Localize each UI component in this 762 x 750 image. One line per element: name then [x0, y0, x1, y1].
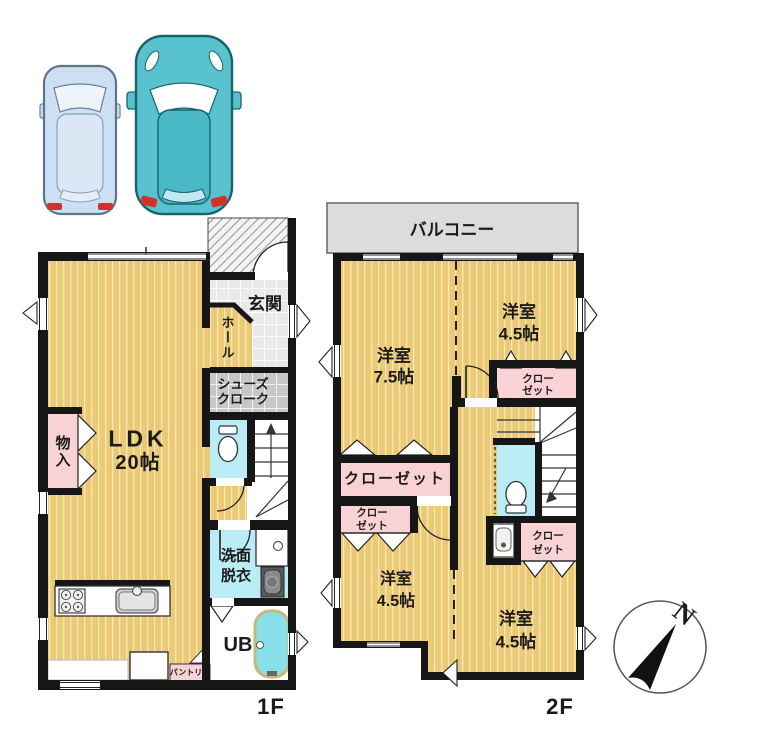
closet-main-label: クローゼット [344, 472, 446, 487]
stove-icon [59, 589, 85, 613]
pantry-label: パントリー [170, 669, 210, 677]
storage-label: 物入 [55, 435, 70, 469]
kitchen-counter [55, 580, 170, 616]
window-marker-icon [319, 347, 332, 377]
window-marker-icon [297, 631, 308, 653]
window-marker-icon [321, 580, 332, 606]
washbasin1-icon [256, 527, 288, 566]
washing-machine-icon [261, 567, 284, 597]
closet-tr-label-2: ゼット [522, 386, 554, 397]
large-car-icon [127, 36, 241, 214]
closet-small-label-2: ゼット [356, 521, 388, 532]
cupboard [48, 660, 128, 680]
ldk-size-label: 20帖 [115, 453, 160, 473]
washbasin2-icon [493, 524, 514, 557]
floor2-tag: 2F [546, 696, 574, 718]
hall-label: ホール [221, 316, 234, 361]
toilet2-icon [506, 482, 526, 514]
shoes-cloak-label-1: シューズ [217, 378, 268, 391]
stairs1-area [252, 420, 288, 520]
room45-left-label: 洋室 [380, 572, 412, 588]
compass-needle [628, 624, 676, 690]
room75-label: 洋室 [377, 348, 411, 365]
closet-small-label-1: クロー [356, 508, 388, 519]
bath-label: UB [224, 635, 253, 655]
room45-right-size-label: 4.5帖 [496, 634, 537, 651]
room45-right-label: 洋室 [499, 611, 533, 628]
window-marker-icon [585, 299, 597, 331]
closet-mr-label-2: ゼット [532, 545, 564, 556]
washroom-label-1: 洗面 [221, 549, 251, 564]
floor2-plan [319, 203, 597, 693]
genkan-label: 玄関 [248, 296, 282, 313]
ldk-label: LDK [108, 428, 167, 451]
room45-top-label: 洋室 [502, 304, 536, 321]
cabinet-box [130, 652, 168, 680]
balcony-label: バルコニー [410, 222, 495, 239]
shoes-cloak-label-2: クローク [217, 393, 269, 406]
drain [267, 671, 277, 676]
room75-size-label: 7.5帖 [374, 369, 415, 386]
washroom-label-2: 脱衣 [221, 569, 251, 584]
taillight-icon [98, 203, 113, 210]
room45-left-size-label: 4.5帖 [377, 594, 415, 610]
window-marker-icon [585, 627, 596, 650]
car-roof [57, 114, 103, 194]
stair-landing [497, 407, 535, 438]
closet-mr-label-1: クロー [532, 531, 564, 542]
corridor1-floor [210, 486, 247, 520]
kitchen-sink-icon [116, 587, 158, 614]
closet-tr-label-1: クロー [522, 374, 554, 385]
exterior-notch [333, 648, 421, 693]
small-car-icon [40, 66, 120, 214]
window-marker-icon [23, 302, 37, 324]
toilet1-icon [219, 426, 238, 462]
car-windshield [54, 84, 106, 112]
floorplan-page: LDK 20帖 玄関 ホール シューズ クローク 物入 洗面 脱衣 UB パント… [0, 0, 762, 750]
bathtub-icon [255, 611, 289, 677]
floor1-tag: 1F [257, 696, 285, 718]
room45-top-size-label: 4.5帖 [499, 326, 540, 343]
window-marker-icon [297, 305, 310, 337]
taillight-icon [47, 203, 62, 210]
